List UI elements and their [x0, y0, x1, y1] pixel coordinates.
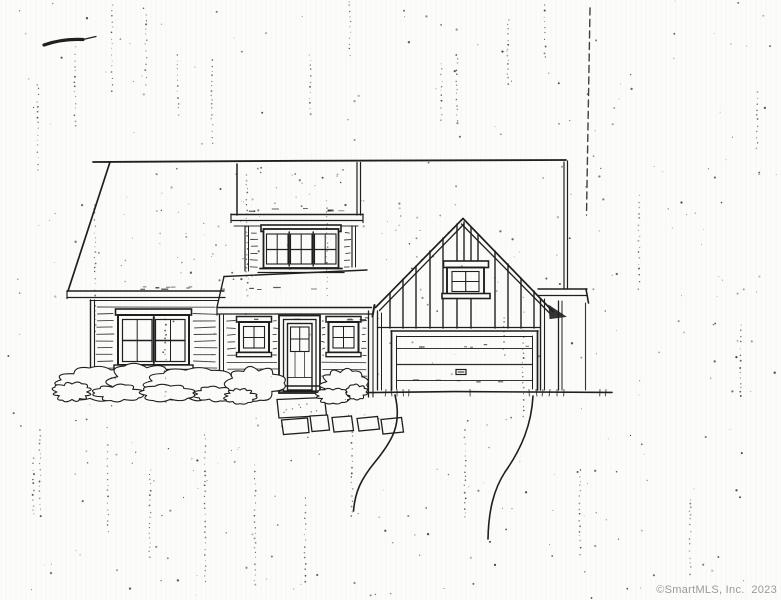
- scan-marks: [44, 8, 590, 215]
- house-elevation-drawing: [0, 0, 781, 600]
- gable-window: [442, 261, 490, 299]
- ground-line: [330, 390, 612, 397]
- ink-linework: [44, 8, 612, 539]
- watermark: ©SmartMLS, Inc. 2023: [656, 584, 777, 596]
- right-wing: [541, 299, 586, 390]
- left-double-window: [114, 309, 193, 370]
- dormer-triple-window: [258, 225, 344, 273]
- scanned-photo: ©SmartMLS, Inc. 2023: [0, 0, 781, 600]
- driveway: [354, 395, 534, 539]
- door-side-window-left: [237, 317, 272, 357]
- garage-door: [391, 331, 538, 390]
- scan-noise: [7, 0, 776, 598]
- door-side-window-right: [326, 317, 361, 357]
